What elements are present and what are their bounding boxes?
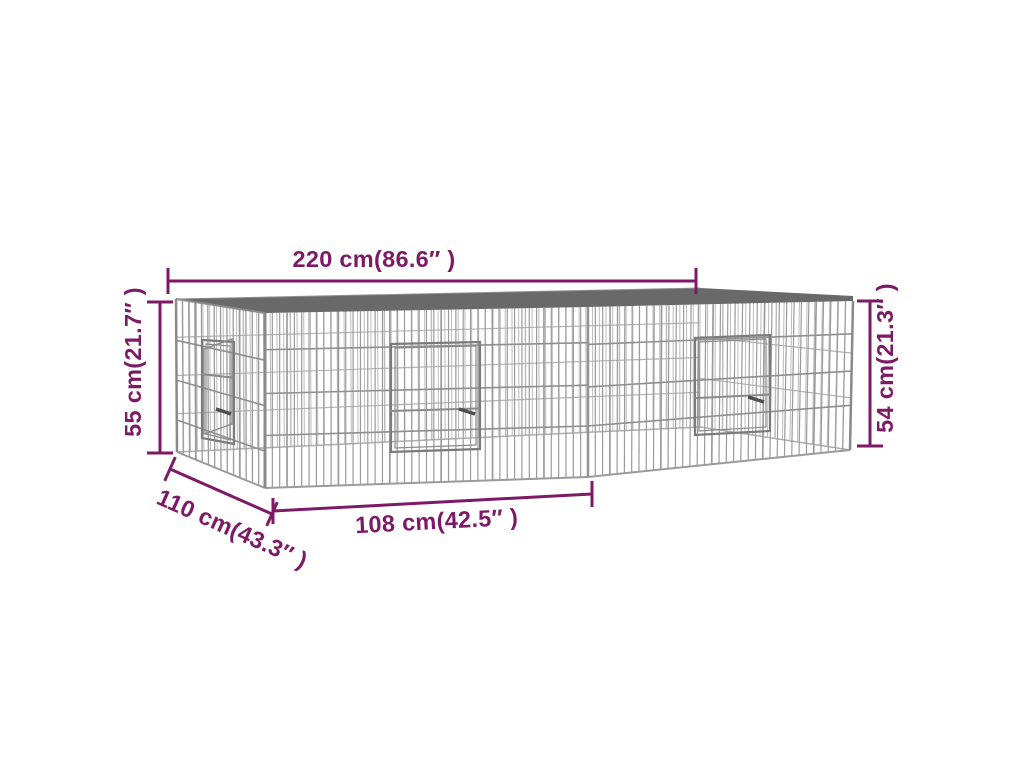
door-latch-icon (216, 409, 231, 414)
panel-width-dimension-label: 108 cm(42.5″ ) (354, 504, 518, 538)
mesh-wire (646, 306, 647, 471)
mesh-wire (843, 301, 846, 451)
diagram-canvas: 220 cm(86.6″ ) 55 cm(21.7″ ) 54 cm(21.3″… (0, 0, 1024, 768)
height-right-dimension: 54 cm(21.3″ ) (857, 283, 898, 446)
mesh-wire (683, 305, 684, 467)
mesh-wire (221, 306, 222, 470)
door-leaf (395, 346, 476, 448)
back-wall-mesh (176, 288, 700, 452)
mesh-wire (208, 304, 209, 465)
door-frame (695, 335, 770, 435)
mesh-wire (632, 306, 633, 473)
left-edge-post (176, 299, 177, 452)
mesh-wire (760, 293, 761, 436)
mesh-wire (661, 305, 662, 469)
door-latch-icon (748, 397, 764, 402)
mesh-wire (189, 301, 190, 457)
mesh-wire (719, 304, 721, 464)
door-latch-icon (459, 409, 475, 414)
mesh-wire (741, 304, 743, 462)
mesh-wire (785, 303, 787, 457)
mesh-wire (790, 296, 792, 441)
mesh-wire (214, 305, 215, 467)
mesh-wire (748, 303, 750, 460)
front-right-corner-post (850, 301, 853, 450)
mesh-wire (763, 303, 765, 459)
cage-drawing (176, 288, 853, 488)
mesh-wire (182, 300, 183, 455)
mesh-wire (745, 292, 746, 434)
height-left-dimension: 55 cm(21.7″ ) (120, 287, 173, 453)
front-left-mesh (265, 307, 588, 488)
width-dimension-label: 220 cm(86.6″ ) (292, 246, 455, 272)
mesh-wire (734, 304, 736, 462)
mesh-wire (675, 305, 676, 468)
mesh-wire (195, 302, 196, 460)
mesh-wire (639, 306, 640, 472)
mesh-wire (690, 305, 691, 467)
height-right-dimension-label: 54 cm(21.3″ ) (872, 283, 898, 433)
mesh-wire (768, 294, 769, 438)
mesh-wire (704, 304, 705, 465)
mesh-wire (668, 305, 669, 469)
front-right-door (695, 335, 770, 435)
mesh-wire (775, 295, 777, 439)
mesh-wire (792, 302, 794, 456)
door-crossbar (202, 374, 234, 377)
mesh-wire (726, 304, 728, 463)
mesh-wire (783, 295, 785, 440)
height-left-dimension-label: 55 cm(21.7″ ) (120, 287, 146, 437)
width-dimension: 220 cm(86.6″ ) (168, 246, 696, 294)
mesh-wire (777, 303, 779, 458)
enclosure-dimension-diagram: 220 cm(86.6″ ) 55 cm(21.7″ ) 54 cm(21.3″… (0, 0, 1024, 768)
mesh-wire (738, 291, 739, 433)
mesh-wire (654, 306, 655, 471)
mesh-wire (730, 291, 731, 432)
mesh-wire (712, 304, 713, 464)
mesh-wire (697, 305, 698, 466)
panel-width-dimension: 108 cm(42.5″ ) (273, 481, 592, 538)
door-crossbar (695, 395, 770, 399)
left-side-mesh (176, 299, 265, 488)
